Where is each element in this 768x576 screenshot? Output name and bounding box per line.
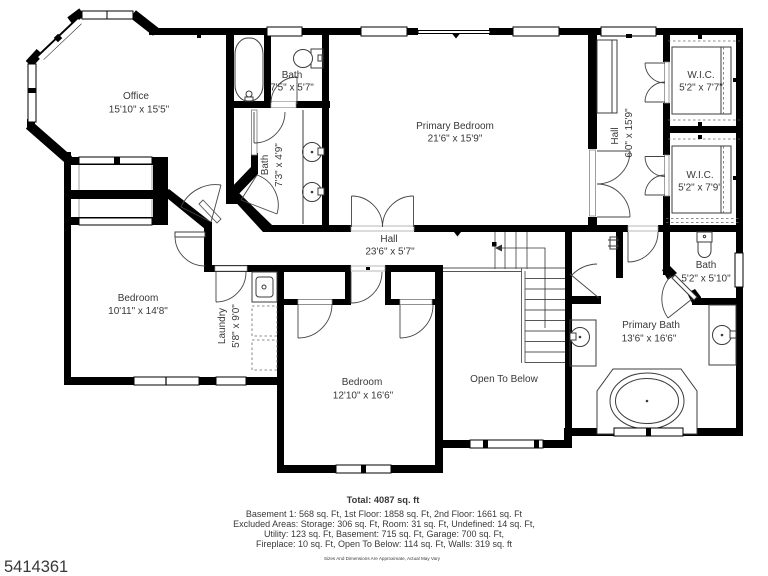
svg-text:Bedroom: Bedroom bbox=[118, 293, 159, 304]
svg-text:Bath: Bath bbox=[696, 260, 717, 271]
svg-text:12'10" x 16'6": 12'10" x 16'6" bbox=[333, 391, 394, 402]
svg-text:10'11" x 14'8": 10'11" x 14'8" bbox=[108, 306, 168, 317]
svg-text:Hall: Hall bbox=[380, 234, 397, 245]
svg-text:Sizes And Dimensions Are Appro: Sizes And Dimensions Are Approximate, Ac… bbox=[324, 556, 441, 561]
svg-text:5'8" x 9'0": 5'8" x 9'0" bbox=[231, 304, 242, 348]
svg-text:Office: Office bbox=[123, 91, 149, 102]
svg-text:Basement 1: 568 sq. Ft, 1st Fl: Basement 1: 568 sq. Ft, 1st Floor: 1858 … bbox=[246, 509, 523, 519]
svg-text:Primary Bedroom: Primary Bedroom bbox=[416, 121, 494, 132]
svg-text:7'5" x 5'7": 7'5" x 5'7" bbox=[270, 83, 314, 94]
svg-text:23'6" x 5'7": 23'6" x 5'7" bbox=[365, 247, 415, 258]
svg-text:5'2" x 5'10": 5'2" x 5'10" bbox=[681, 274, 731, 285]
svg-text:21'6" x 15'9": 21'6" x 15'9" bbox=[428, 134, 483, 145]
svg-text:W.I.C.: W.I.C. bbox=[687, 70, 714, 81]
svg-text:15'10" x 15'5": 15'10" x 15'5" bbox=[109, 105, 170, 116]
svg-text:13'6" x 16'6": 13'6" x 16'6" bbox=[622, 334, 677, 345]
svg-text:5414361: 5414361 bbox=[4, 558, 68, 576]
svg-text:Hall: Hall bbox=[610, 127, 621, 144]
svg-text:Excluded Areas: Storage: 306 s: Excluded Areas: Storage: 306 sq. Ft, Roo… bbox=[233, 519, 535, 529]
svg-text:Fireplace: 10 sq. Ft, Open To: Fireplace: 10 sq. Ft, Open To Below: 114… bbox=[256, 539, 512, 549]
svg-text:Utility: 123 sq. Ft, Basement:: Utility: 123 sq. Ft, Basement: 715 sq. F… bbox=[264, 529, 504, 539]
svg-text:Open To Below: Open To Below bbox=[470, 374, 538, 385]
svg-text:6'0" x 15'9": 6'0" x 15'9" bbox=[624, 108, 635, 158]
svg-text:7'3" x 4'9": 7'3" x 4'9" bbox=[274, 143, 285, 187]
svg-text:Total: 4087 sq. ft: Total: 4087 sq. ft bbox=[347, 495, 420, 505]
svg-text:5'2" x 7'9": 5'2" x 7'9" bbox=[678, 183, 722, 194]
svg-text:Laundry: Laundry bbox=[217, 308, 228, 344]
svg-text:Bath: Bath bbox=[260, 155, 271, 176]
svg-text:5'2" x 7'7": 5'2" x 7'7" bbox=[679, 83, 723, 94]
svg-text:Bath: Bath bbox=[282, 70, 303, 81]
svg-text:Bedroom: Bedroom bbox=[342, 377, 383, 388]
svg-text:W.I.C.: W.I.C. bbox=[686, 170, 713, 181]
svg-text:Primary Bath: Primary Bath bbox=[622, 320, 680, 331]
